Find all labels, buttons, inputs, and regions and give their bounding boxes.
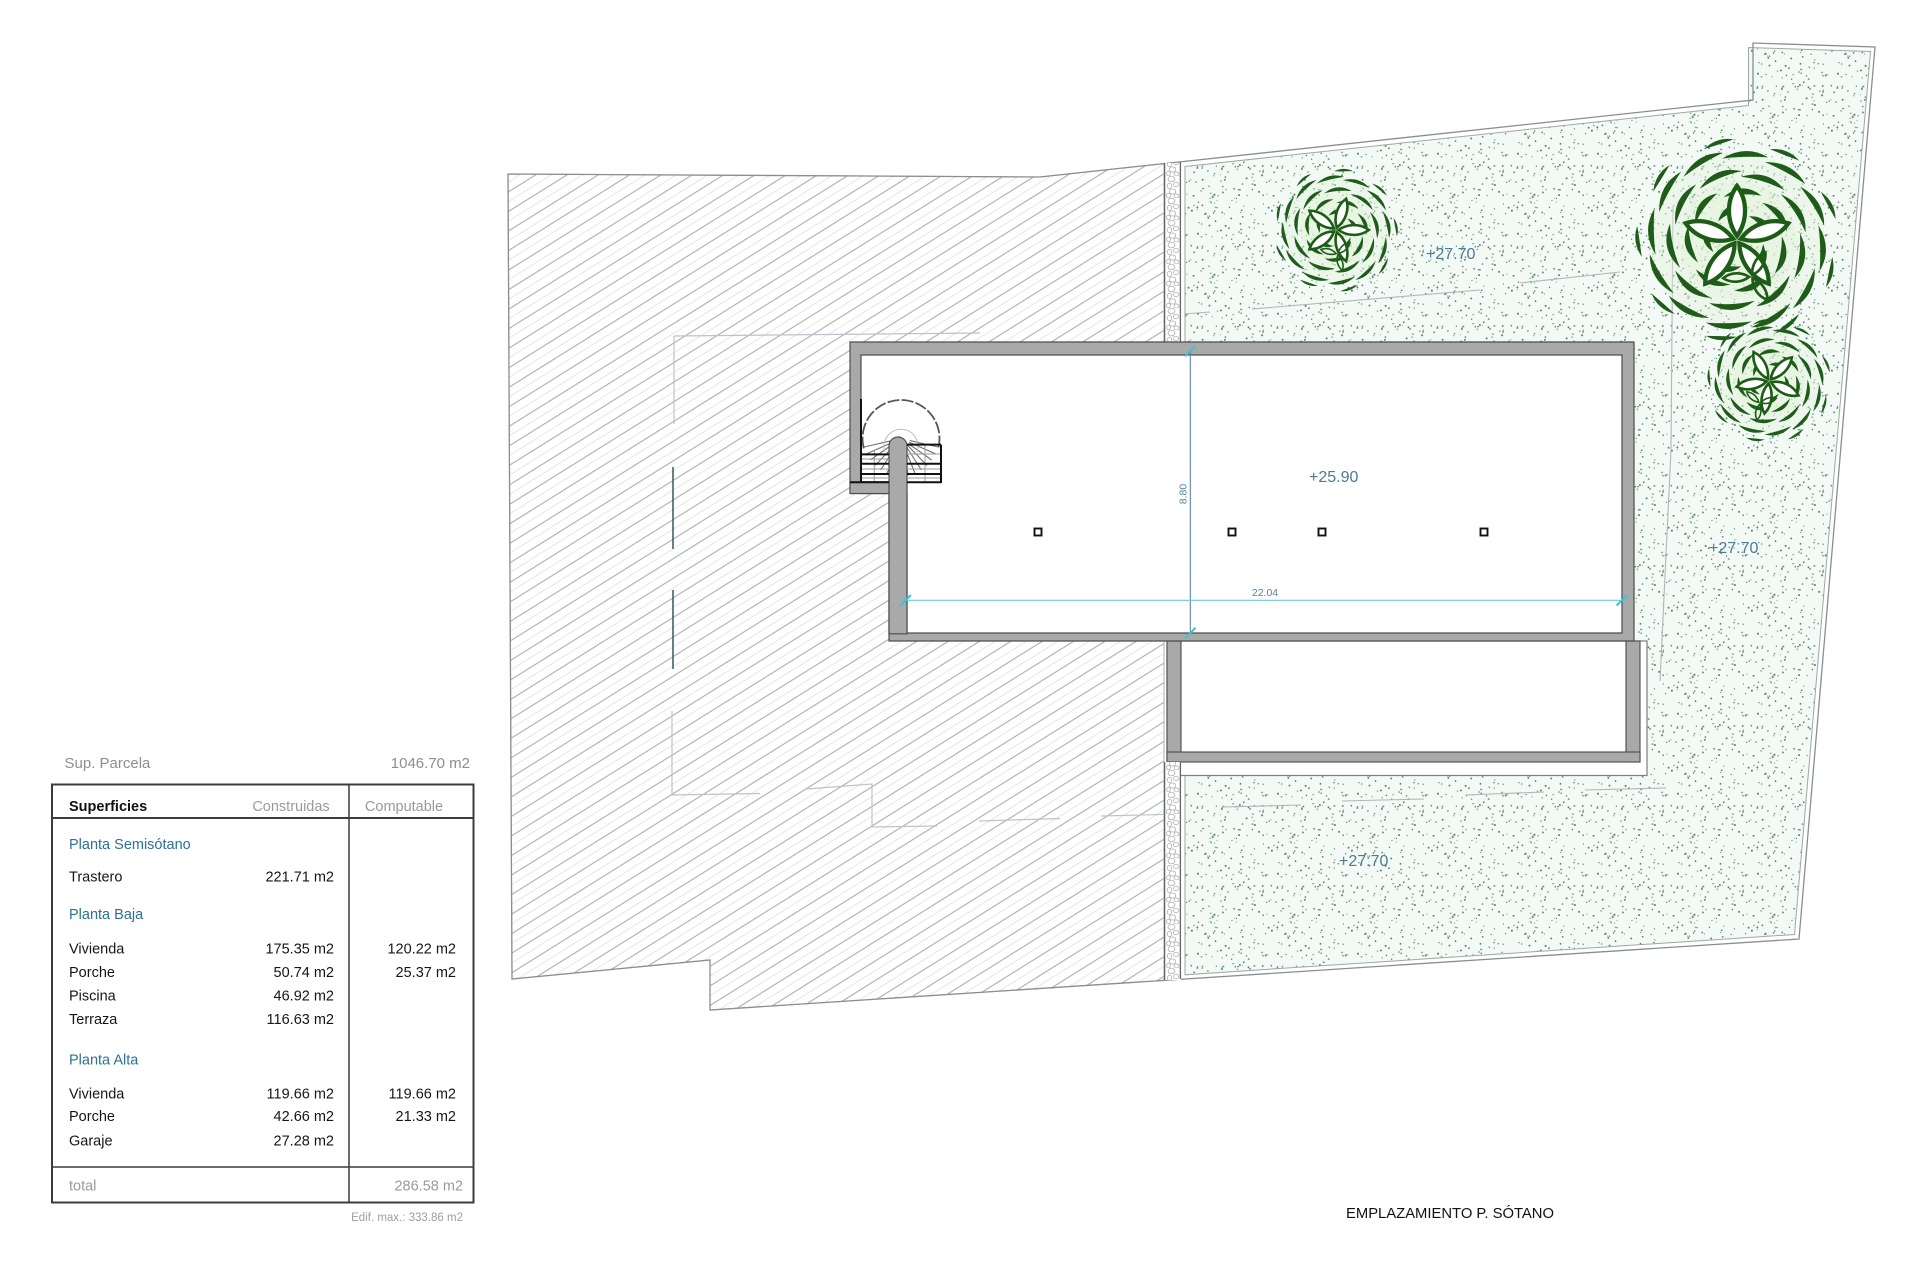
svg-text:286.58 m2: 286.58 m2 <box>394 1179 463 1195</box>
svg-text:Garaje: Garaje <box>69 1134 113 1150</box>
svg-text:120.22 m2: 120.22 m2 <box>387 942 456 958</box>
svg-text:Planta Semisótano: Planta Semisótano <box>69 837 191 853</box>
svg-text:+27.70: +27.70 <box>1339 853 1388 870</box>
svg-text:Edif. max.: 333.86 m2: Edif. max.: 333.86 m2 <box>351 1212 463 1224</box>
svg-text:25.37 m2: 25.37 m2 <box>396 965 456 981</box>
svg-text:221.71 m2: 221.71 m2 <box>265 870 334 886</box>
svg-text:Piscina: Piscina <box>69 989 117 1005</box>
svg-text:Vivienda: Vivienda <box>69 942 125 958</box>
svg-text:42.66 m2: 42.66 m2 <box>274 1109 334 1125</box>
svg-text:Sup. Parcela: Sup. Parcela <box>65 755 152 772</box>
svg-text:+27.70: +27.70 <box>1709 540 1758 557</box>
svg-text:175.35 m2: 175.35 m2 <box>265 942 334 958</box>
svg-text:Superficies: Superficies <box>69 799 147 815</box>
svg-text:Porche: Porche <box>69 965 115 981</box>
svg-text:119.66 m2: 119.66 m2 <box>389 1087 456 1103</box>
svg-text:8.80: 8.80 <box>1178 484 1190 505</box>
svg-text:116.63 m2: 116.63 m2 <box>267 1012 334 1028</box>
svg-text:1046.70 m2: 1046.70 m2 <box>391 755 470 772</box>
svg-text:21.33 m2: 21.33 m2 <box>396 1109 456 1125</box>
svg-text:Trastero: Trastero <box>69 870 122 886</box>
svg-text:119.66 m2: 119.66 m2 <box>267 1087 334 1103</box>
svg-text:Vivienda: Vivienda <box>69 1087 125 1103</box>
svg-text:EMPLAZAMIENTO P. SÓTANO: EMPLAZAMIENTO P. SÓTANO <box>1346 1205 1554 1222</box>
svg-text:+27.70: +27.70 <box>1426 246 1475 263</box>
svg-text:27.28 m2: 27.28 m2 <box>274 1134 334 1150</box>
svg-text:+25.90: +25.90 <box>1309 469 1358 486</box>
svg-text:Computable: Computable <box>365 799 443 815</box>
svg-text:Terraza: Terraza <box>69 1012 118 1028</box>
svg-text:Planta Baja: Planta Baja <box>69 907 144 923</box>
svg-text:46.92 m2: 46.92 m2 <box>274 989 334 1005</box>
svg-text:Porche: Porche <box>69 1109 115 1125</box>
svg-text:Planta Alta: Planta Alta <box>69 1053 139 1069</box>
svg-text:Construidas: Construidas <box>252 799 329 815</box>
svg-text:22.04: 22.04 <box>1252 587 1278 599</box>
svg-text:total: total <box>69 1179 96 1195</box>
svg-text:50.74 m2: 50.74 m2 <box>274 965 334 981</box>
